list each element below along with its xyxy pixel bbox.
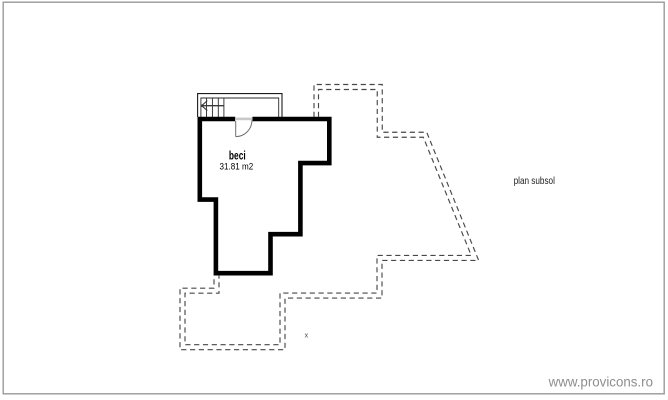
svg-text:31.81 m2: 31.81 m2 — [220, 161, 254, 171]
svg-text:www.provicons.ro: www.provicons.ro — [548, 375, 653, 390]
svg-text:plan subsol: plan subsol — [514, 175, 555, 187]
svg-text:beci: beci — [229, 148, 246, 162]
svg-text:x: x — [305, 333, 309, 340]
